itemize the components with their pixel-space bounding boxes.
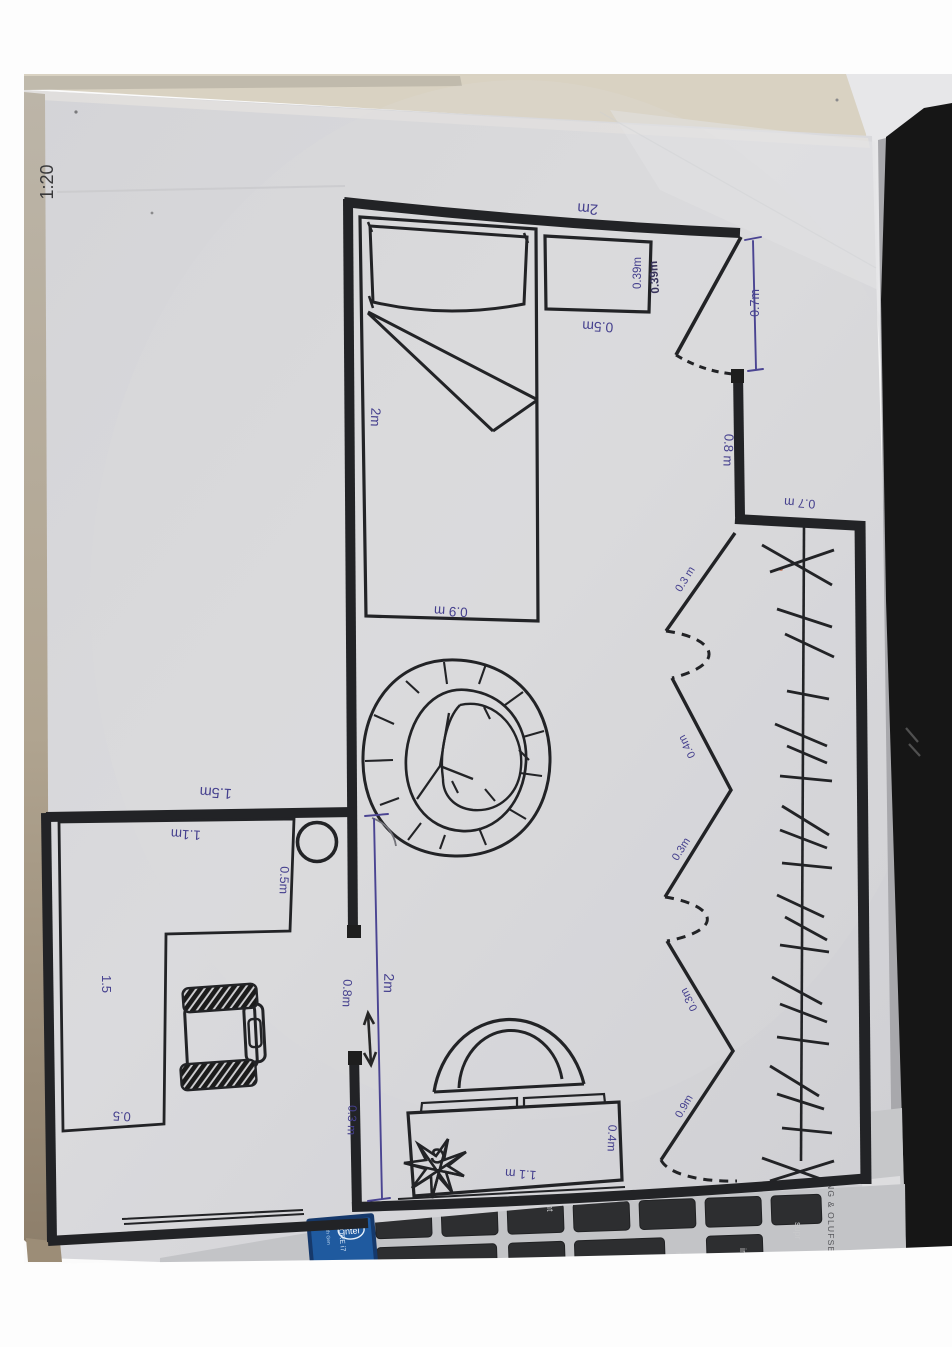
svg-text:0.39m: 0.39m — [648, 261, 662, 294]
svg-text:0.8 m: 0.8 m — [720, 434, 736, 467]
svg-text:0.5m: 0.5m — [582, 318, 614, 336]
svg-text:2m: 2m — [368, 408, 384, 427]
svg-text:0.8m: 0.8m — [340, 979, 355, 1007]
svg-text:0.7m: 0.7m — [748, 289, 762, 317]
svg-text:supr: supr — [793, 1222, 803, 1240]
svg-text:0.9 m: 0.9 m — [434, 603, 469, 620]
svg-text:0.7 m: 0.7 m — [784, 495, 816, 511]
svg-text:1:20: 1:20 — [37, 164, 57, 199]
svg-text:1.1 m: 1.1 m — [505, 1166, 537, 1182]
svg-text:nt: nt — [545, 1204, 555, 1212]
svg-text:1.1m: 1.1m — [170, 826, 201, 843]
svg-text:2m: 2m — [577, 199, 599, 217]
svg-text:0.4m: 0.4m — [605, 1125, 620, 1152]
svg-text:2m: 2m — [381, 973, 398, 993]
svg-text:0.5: 0.5 — [112, 1109, 131, 1125]
svg-text:1.5m: 1.5m — [199, 783, 232, 801]
svg-text:NG & OLUFSE: NG & OLUFSE — [826, 1183, 836, 1253]
svg-text:0.39m: 0.39m — [632, 257, 644, 289]
svg-text:0.3 m: 0.3 m — [344, 1105, 359, 1135]
svg-text:0.5m: 0.5m — [277, 866, 292, 894]
svg-text:1.5: 1.5 — [99, 975, 114, 993]
